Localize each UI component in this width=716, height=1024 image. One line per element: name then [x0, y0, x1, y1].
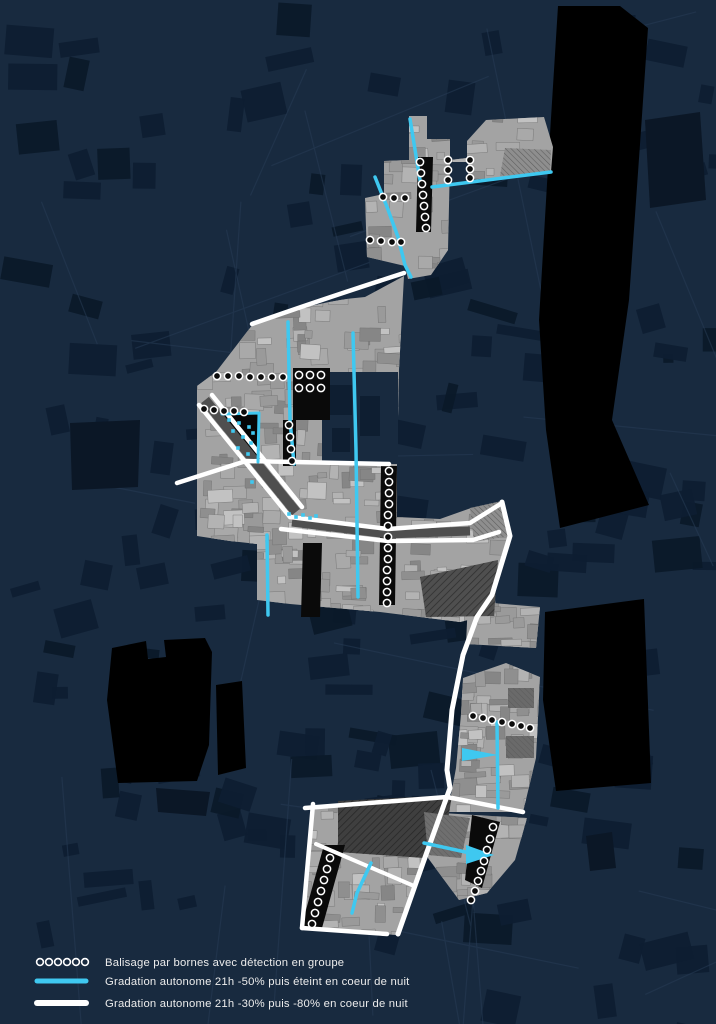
black-zone-west-strip — [216, 681, 246, 775]
lighting-plan-poster: Balisage par bornes avec détection en gr… — [0, 0, 716, 1024]
legend-bollards-label: Balisage par bornes avec détection en gr… — [105, 957, 344, 969]
lighting-plan-map: Balisage par bornes avec détection en gr… — [0, 0, 716, 1024]
legend-cyan-label: Gradation autonome 21h -50% puis éteint … — [105, 976, 410, 988]
black-zone-west-blob — [107, 638, 212, 783]
legend-white-label: Gradation autonome 21h -30% puis -80% en… — [105, 998, 408, 1010]
black-zone-southeast-square — [543, 599, 651, 791]
center-cluster-notch — [322, 372, 398, 464]
